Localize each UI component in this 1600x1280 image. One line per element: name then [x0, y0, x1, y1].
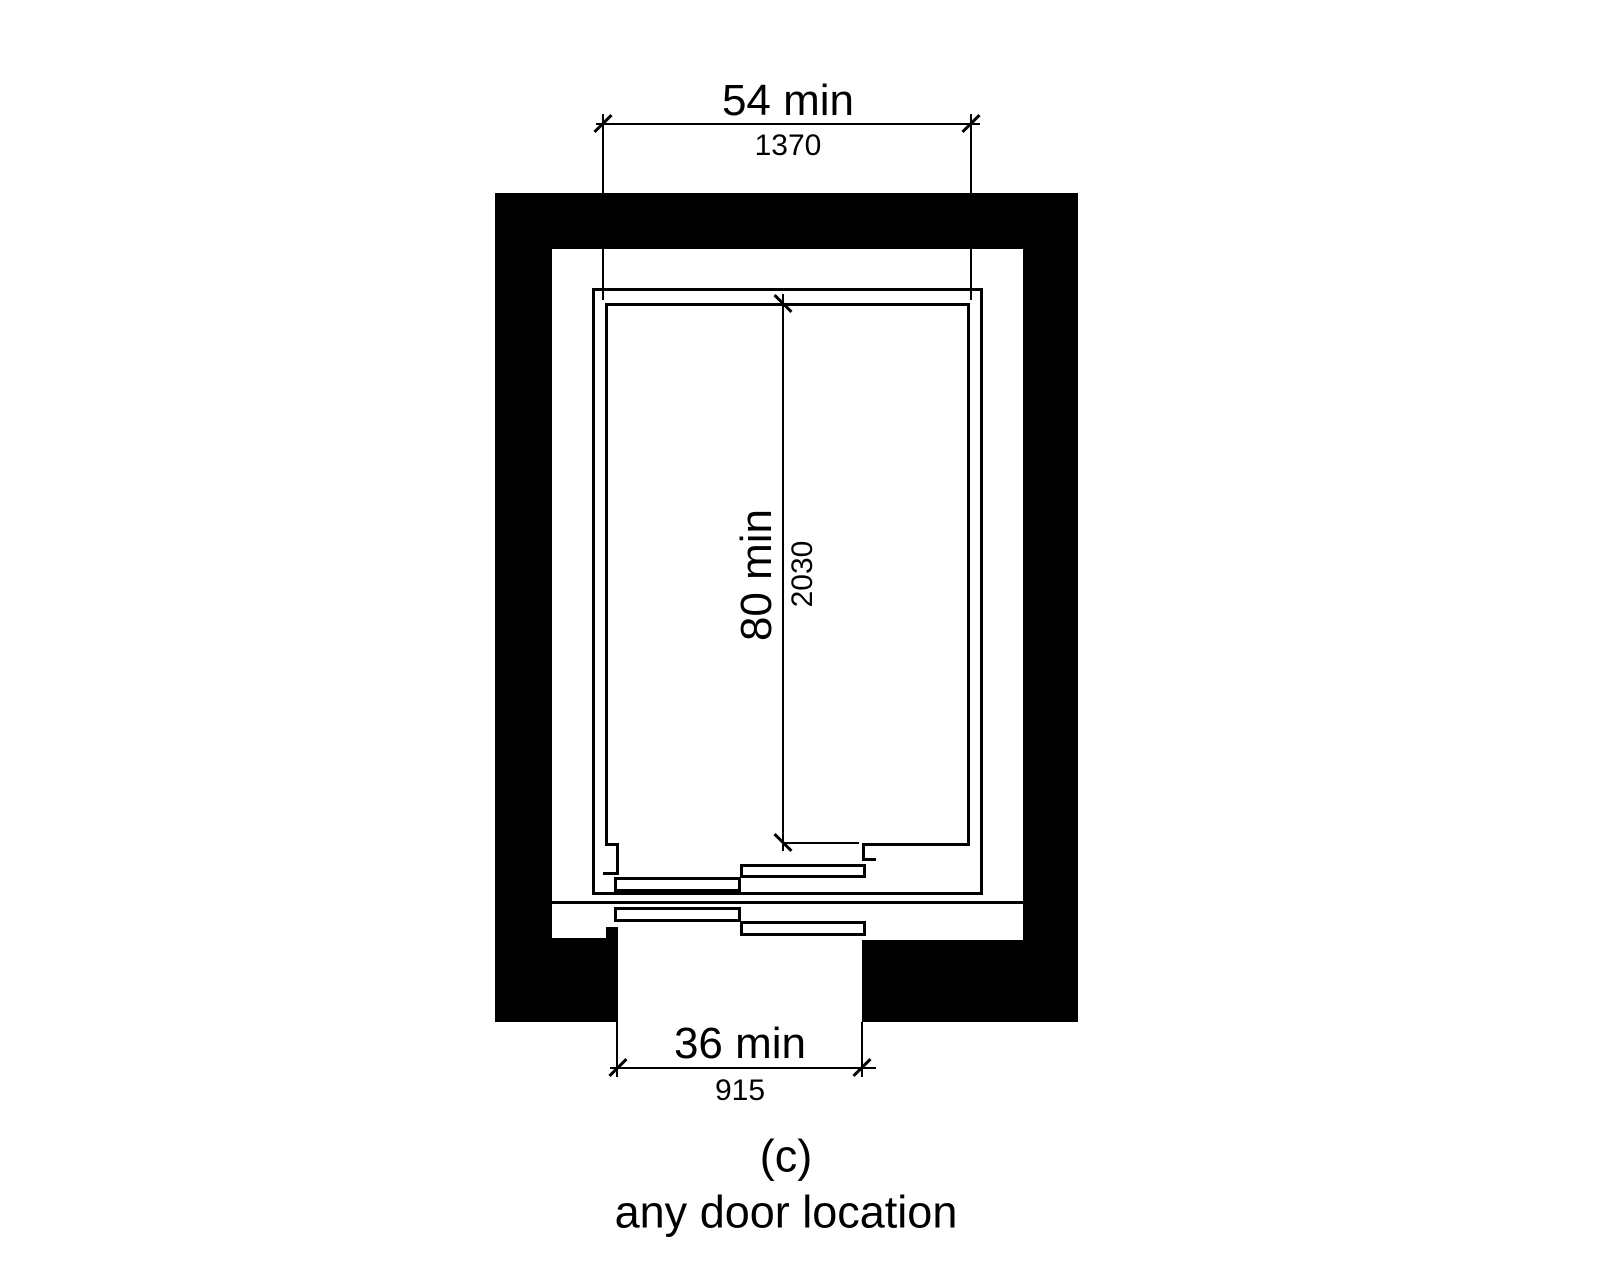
hoistway-door-panel-left — [614, 907, 741, 922]
hoistway-wall-left — [495, 193, 552, 1022]
dim-width-extension-left — [602, 114, 604, 300]
dim-depth-label-imperial: 80 min — [735, 509, 779, 641]
car-inner-wall-right — [967, 303, 970, 845]
figure-caption-text: any door location — [615, 1190, 958, 1235]
hoistway-wall-right — [1023, 193, 1078, 1022]
dim-depth-line — [782, 294, 784, 851]
sill-line — [551, 901, 1023, 904]
dim-depth-leader — [783, 842, 859, 844]
dim-door-label-metric: 915 — [715, 1076, 765, 1106]
hoistway-door-jamb-stub — [606, 927, 618, 939]
car-jamb-right-face — [862, 843, 970, 846]
hoistway-wall-bottom-right — [862, 940, 1023, 1022]
car-jamb-left-stop — [603, 872, 619, 875]
hoistway-wall-top — [495, 193, 1078, 249]
car-door-panel-left — [614, 877, 741, 892]
hoistway-door-panel-right — [740, 921, 866, 936]
car-door-panel-right — [740, 864, 866, 878]
car-jamb-left-return — [616, 843, 619, 875]
car-jamb-right-stop — [862, 858, 876, 861]
dim-depth-label-metric: 2030 — [788, 541, 818, 608]
dim-width-label-imperial: 54 min — [722, 79, 854, 123]
dim-width-label-metric: 1370 — [755, 131, 822, 161]
dim-width-extension-right — [970, 114, 972, 300]
figure-caption-letter: (c) — [760, 1134, 812, 1179]
elevator-car-plan-diagram: 54 min 1370 80 min 2030 36 min 915 (c) a… — [0, 0, 1600, 1280]
car-inner-wall-left — [605, 303, 608, 843]
hoistway-wall-bottom-left — [551, 938, 618, 1022]
dim-door-label-imperial: 36 min — [674, 1022, 806, 1066]
